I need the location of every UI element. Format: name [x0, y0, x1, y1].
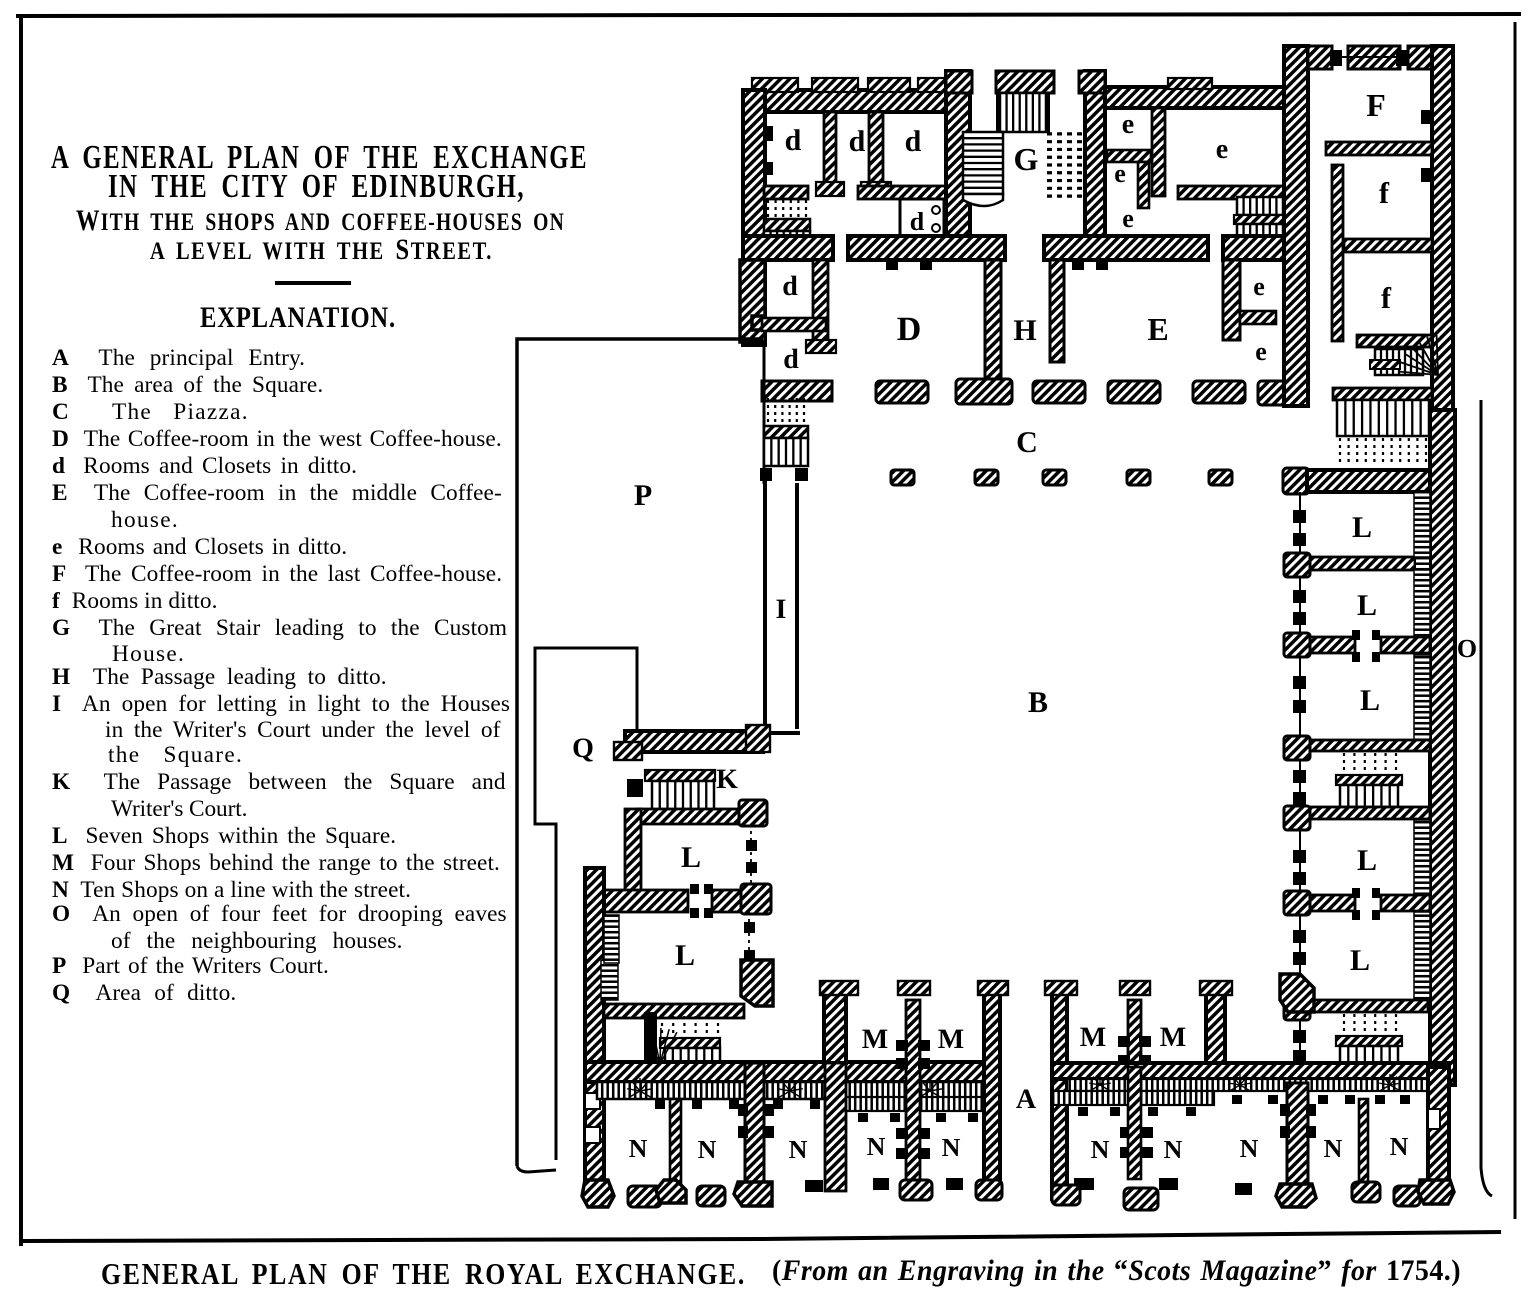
- svg-text:e: e: [1122, 109, 1134, 140]
- svg-text:N: N: [867, 1132, 886, 1161]
- svg-text:N: N: [1390, 1132, 1409, 1161]
- svg-text:d: d: [782, 271, 798, 302]
- svg-text:N: N: [1091, 1135, 1110, 1164]
- svg-text:d: d: [910, 207, 925, 236]
- svg-text:e: e: [1253, 272, 1265, 301]
- svg-text:M: M: [1080, 1022, 1106, 1053]
- svg-text:E: E: [1147, 311, 1168, 347]
- svg-text:A: A: [1016, 1084, 1037, 1115]
- svg-text:B: B: [1028, 686, 1048, 719]
- svg-text:D: D: [897, 311, 922, 348]
- svg-text:N: N: [1324, 1134, 1343, 1163]
- svg-text:M: M: [862, 1024, 888, 1055]
- svg-text:L: L: [1352, 511, 1372, 544]
- svg-text:N: N: [698, 1135, 717, 1164]
- svg-text:d: d: [785, 124, 802, 157]
- svg-text:Q: Q: [572, 733, 594, 764]
- svg-text:G: G: [1014, 141, 1039, 177]
- svg-text:I: I: [776, 594, 787, 625]
- svg-text:f: f: [1379, 177, 1390, 210]
- svg-text:N: N: [1164, 1135, 1183, 1164]
- svg-text:L: L: [681, 841, 701, 874]
- svg-text:L: L: [675, 939, 695, 972]
- svg-text:L: L: [1350, 944, 1370, 977]
- svg-text:L: L: [1360, 684, 1380, 717]
- svg-text:e: e: [1122, 204, 1134, 233]
- svg-text:d: d: [905, 125, 922, 158]
- svg-text:C: C: [1016, 426, 1038, 459]
- svg-text:e: e: [1114, 159, 1126, 188]
- svg-text:d: d: [783, 344, 799, 375]
- svg-text:F: F: [1366, 87, 1386, 123]
- svg-text:K: K: [716, 764, 738, 795]
- svg-text:e: e: [1216, 134, 1228, 165]
- svg-text:N: N: [1240, 1134, 1259, 1163]
- svg-text:f: f: [1381, 282, 1392, 315]
- svg-text:M: M: [938, 1024, 964, 1055]
- svg-text:L: L: [1357, 844, 1377, 877]
- svg-text:L: L: [1357, 589, 1377, 622]
- svg-text:N: N: [629, 1134, 648, 1163]
- svg-text:d: d: [849, 125, 866, 158]
- svg-text:N: N: [789, 1135, 808, 1164]
- svg-text:e: e: [1255, 337, 1267, 366]
- svg-text:H: H: [1013, 314, 1036, 347]
- svg-text:O: O: [1457, 634, 1477, 663]
- svg-text:N: N: [942, 1133, 961, 1162]
- svg-text:P: P: [634, 479, 652, 512]
- svg-text:M: M: [1160, 1022, 1186, 1053]
